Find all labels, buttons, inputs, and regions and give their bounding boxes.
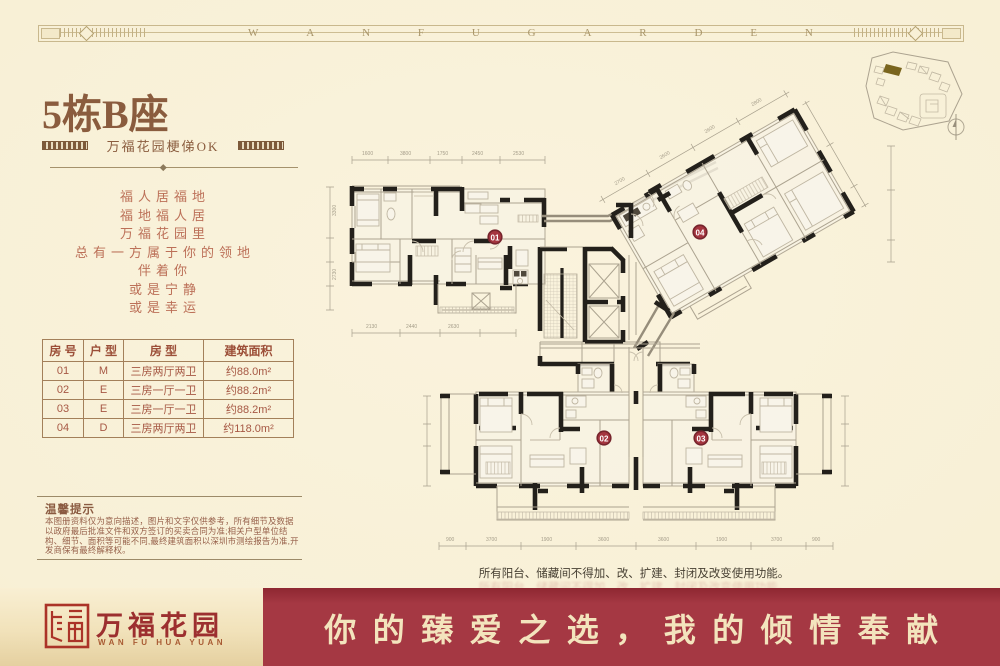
svg-text:2730: 2730 bbox=[332, 269, 338, 280]
svg-text:3800: 3800 bbox=[400, 151, 411, 157]
svg-text:2600: 2600 bbox=[704, 124, 717, 135]
svg-text:3600: 3600 bbox=[598, 537, 609, 543]
svg-text:3700: 3700 bbox=[771, 537, 782, 543]
svg-text:1900: 1900 bbox=[541, 537, 552, 543]
svg-text:2600: 2600 bbox=[659, 150, 672, 161]
svg-text:1750: 1750 bbox=[437, 151, 448, 157]
svg-text:2630: 2630 bbox=[448, 324, 459, 330]
svg-text:02: 02 bbox=[600, 435, 609, 444]
svg-text:01: 01 bbox=[491, 234, 500, 243]
svg-text:2450: 2450 bbox=[472, 151, 483, 157]
svg-text:1600: 1600 bbox=[362, 151, 373, 157]
svg-text:04: 04 bbox=[696, 229, 705, 238]
svg-text:2130: 2130 bbox=[366, 324, 377, 330]
svg-text:900: 900 bbox=[446, 537, 455, 543]
svg-text:1900: 1900 bbox=[716, 537, 727, 543]
svg-text:3600: 3600 bbox=[658, 537, 669, 543]
svg-text:3700: 3700 bbox=[486, 537, 497, 543]
svg-text:2530: 2530 bbox=[513, 151, 524, 157]
svg-text:2440: 2440 bbox=[406, 324, 417, 330]
svg-text:2700: 2700 bbox=[614, 176, 627, 187]
svg-text:900: 900 bbox=[812, 537, 821, 543]
svg-text:2800: 2800 bbox=[750, 97, 763, 108]
svg-text:03: 03 bbox=[697, 435, 706, 444]
svg-text:3300: 3300 bbox=[332, 205, 338, 216]
